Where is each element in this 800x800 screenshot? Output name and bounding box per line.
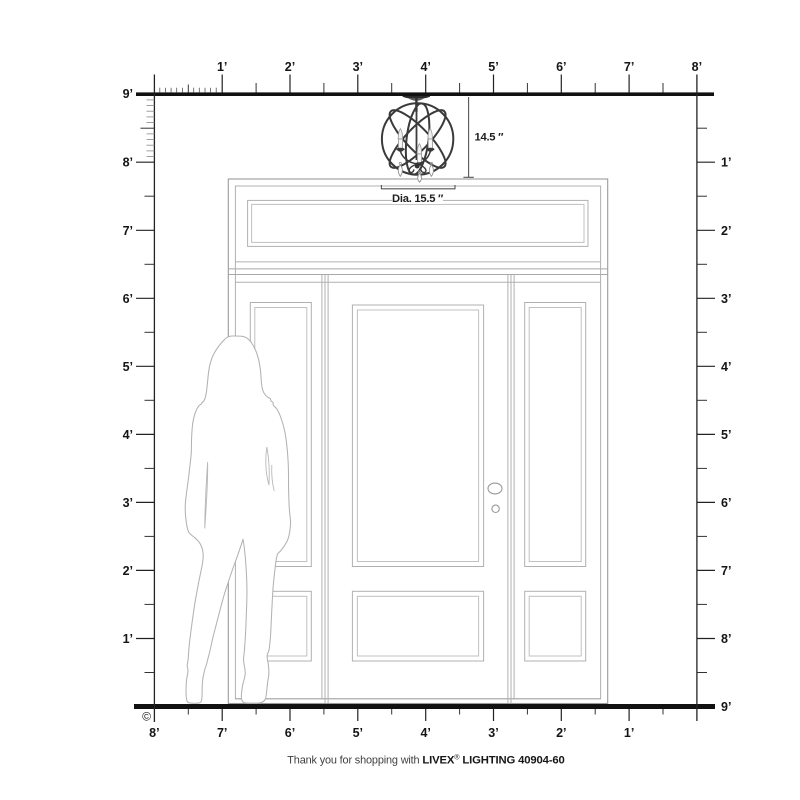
svg-text:7’: 7’ xyxy=(721,564,731,578)
svg-text:7’: 7’ xyxy=(123,224,133,238)
svg-text:1’: 1’ xyxy=(721,156,731,170)
svg-text:6’: 6’ xyxy=(285,726,295,740)
svg-text:8’: 8’ xyxy=(721,632,731,646)
svg-text:9’: 9’ xyxy=(721,700,731,714)
svg-text:8’: 8’ xyxy=(123,156,133,170)
svg-text:9’: 9’ xyxy=(123,87,133,101)
svg-text:2’: 2’ xyxy=(721,224,731,238)
svg-text:3’: 3’ xyxy=(721,292,731,306)
svg-text:5’: 5’ xyxy=(721,428,731,442)
svg-text:8’: 8’ xyxy=(149,726,159,740)
svg-text:14.5 ″: 14.5 ″ xyxy=(475,132,505,144)
svg-text:6’: 6’ xyxy=(123,292,133,306)
svg-text:5’: 5’ xyxy=(488,60,498,74)
svg-text:2’: 2’ xyxy=(556,726,566,740)
svg-text:1’: 1’ xyxy=(624,726,634,740)
svg-text:6’: 6’ xyxy=(721,496,731,510)
svg-text:©: © xyxy=(142,710,151,724)
svg-text:4’: 4’ xyxy=(123,428,133,442)
svg-text:7’: 7’ xyxy=(624,60,634,74)
svg-text:4’: 4’ xyxy=(721,360,731,374)
svg-text:1’: 1’ xyxy=(123,632,133,646)
svg-text:Dia. 15.5 ″: Dia. 15.5 ″ xyxy=(392,193,444,205)
svg-text:3’: 3’ xyxy=(353,60,363,74)
svg-text:3’: 3’ xyxy=(488,726,498,740)
svg-text:Thank you for shopping with LI: Thank you for shopping with LIVEX® LIGHT… xyxy=(287,753,564,767)
svg-text:4’: 4’ xyxy=(420,60,430,74)
svg-text:7’: 7’ xyxy=(217,726,227,740)
svg-text:4’: 4’ xyxy=(420,726,430,740)
svg-text:5’: 5’ xyxy=(123,360,133,374)
svg-text:5’: 5’ xyxy=(353,726,363,740)
svg-text:1’: 1’ xyxy=(217,60,227,74)
svg-text:8’: 8’ xyxy=(692,60,702,74)
svg-text:2’: 2’ xyxy=(285,60,295,74)
svg-text:6’: 6’ xyxy=(556,60,566,74)
svg-text:3’: 3’ xyxy=(123,496,133,510)
svg-text:2’: 2’ xyxy=(123,564,133,578)
